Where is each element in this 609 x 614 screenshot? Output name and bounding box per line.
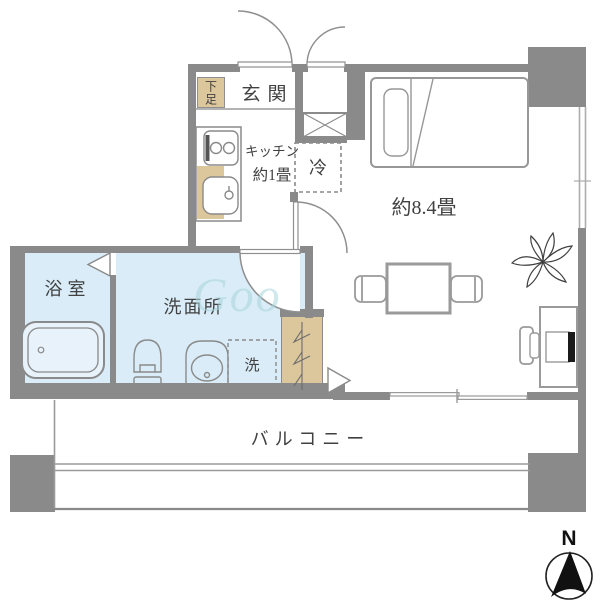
bathroom-label: 浴室: [34, 276, 96, 300]
genkan-label: 玄関: [232, 79, 296, 105]
wall: [527, 392, 578, 400]
wall-corridor-left: [188, 68, 196, 253]
service-door-arc: [307, 27, 345, 67]
fridge-label: 冷: [304, 153, 332, 181]
entrance-door-arc: [238, 11, 292, 67]
kitchen-label-line2: 約1畳: [245, 163, 299, 185]
wall-balcony-left-block: [10, 455, 55, 512]
wall-bathroom-left: [10, 246, 25, 399]
bed-icon: [371, 78, 528, 167]
wall-right: [578, 228, 586, 454]
wall: [290, 192, 298, 202]
wall: [344, 64, 530, 72]
wall: [347, 68, 365, 140]
stove-icon: [204, 131, 238, 165]
chair-icon: [355, 276, 386, 302]
balcony-label: バルコニー: [228, 425, 393, 451]
desk-chair-icon: [520, 327, 539, 364]
floor-plan: 下足: [0, 0, 609, 614]
shoe-box: 下足: [197, 77, 225, 108]
wall: [110, 275, 116, 397]
table-icon: [387, 264, 450, 313]
wall: [10, 246, 240, 253]
wall-closet-cap: [280, 309, 324, 317]
main-room-label: 約8.4畳: [374, 192, 474, 218]
desk-icon: [540, 307, 577, 387]
laundry-label: 洗: [241, 352, 263, 376]
kitchen-label-line1: キッチン: [243, 141, 301, 159]
closet: [281, 316, 323, 393]
pillar-top-right: [528, 47, 586, 107]
balcony-railing: [54, 400, 530, 509]
wall: [295, 68, 303, 140]
monitor-icon: [546, 332, 569, 362]
compass-north-label: N: [552, 525, 586, 553]
sliding-window-icon: [390, 389, 527, 403]
right-window-icon: [574, 107, 591, 228]
watermark-text: Goo: [193, 268, 282, 323]
sink-counter-base: [197, 166, 224, 219]
chair-icon: [451, 276, 482, 302]
shaft-x-box: [303, 113, 347, 137]
wall: [305, 250, 313, 318]
wall-washblock-bottom: [10, 383, 345, 399]
wall: [295, 137, 347, 143]
compass-icon: [546, 551, 592, 599]
shoe-box-label: 下足: [203, 80, 220, 106]
bathroom-floor: [25, 253, 110, 384]
pillar-bottom-right: [528, 453, 586, 512]
plant-icon: [512, 233, 572, 287]
